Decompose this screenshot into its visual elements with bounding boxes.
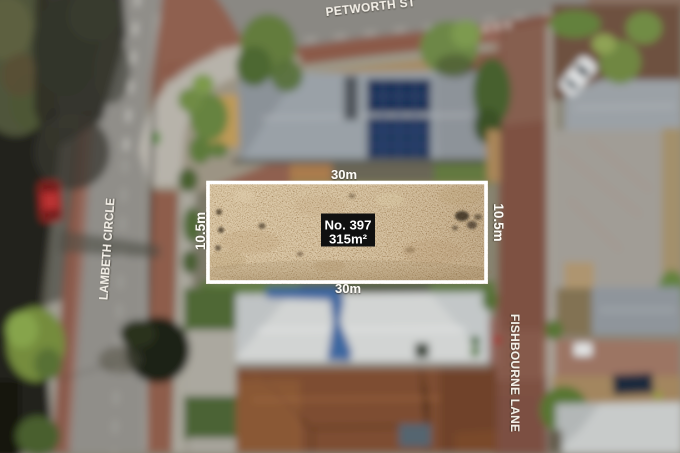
svg-text:10.5m: 10.5m: [491, 203, 506, 241]
svg-text:FISHBOURNE LANE: FISHBOURNE LANE: [508, 314, 522, 432]
svg-text:No. 397: No. 397: [325, 218, 372, 233]
svg-text:30m: 30m: [331, 167, 357, 182]
svg-text:30m: 30m: [335, 281, 361, 296]
svg-text:10.5m: 10.5m: [193, 212, 208, 250]
svg-text:315m²: 315m²: [329, 232, 368, 247]
